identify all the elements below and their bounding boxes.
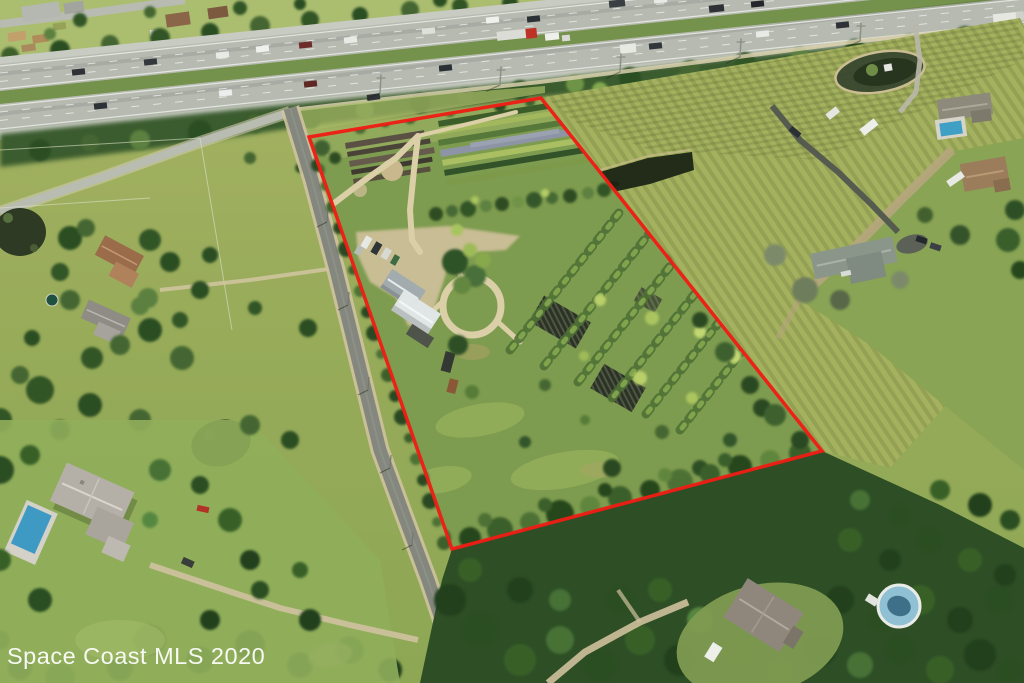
trampoline [46,294,58,306]
gazebo [884,63,893,71]
aerial-photo: Space Coast MLS 2020 [0,0,1024,683]
aerial-photo-canvas: Space Coast MLS 2020 [0,0,1024,683]
mls-watermark: Space Coast MLS 2020 [7,643,265,669]
